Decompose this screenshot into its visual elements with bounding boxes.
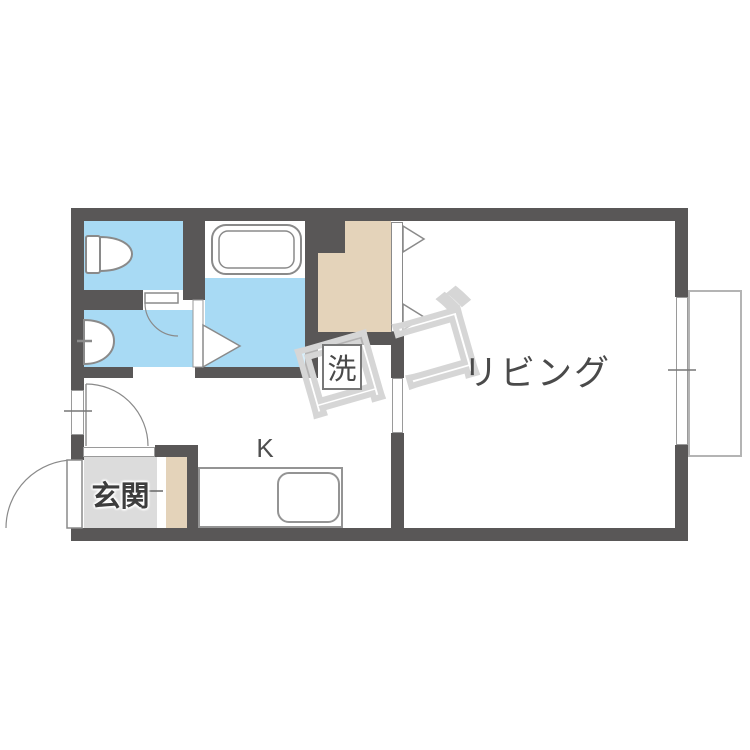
- kitchen-living-opening: [392, 378, 403, 433]
- living-room-label: リビング: [437, 345, 637, 396]
- washing-machine-label: 洗: [327, 346, 356, 388]
- wall-bath-south: [195, 367, 318, 378]
- wall-kitchen-living-lower: [391, 433, 404, 528]
- kitchen-label: K: [248, 433, 282, 464]
- bathtub-icon: [212, 225, 301, 274]
- kitchen-sink-icon: [277, 472, 340, 523]
- washing-machine-space: 洗: [322, 344, 362, 390]
- wall-right-upper: [675, 208, 688, 297]
- bathroom-floor: [205, 278, 305, 367]
- shoe-cabinet: [166, 457, 187, 528]
- balcony: [688, 290, 742, 457]
- wall-closet-notch: [305, 208, 345, 253]
- bath-door-strip: [193, 300, 203, 367]
- wall-entrance-stub: [155, 445, 198, 457]
- entrance-threshold: [83, 447, 155, 457]
- wall-toilet-bath: [183, 221, 205, 300]
- left-window: [71, 390, 84, 435]
- right-window: [676, 297, 688, 445]
- wall-entrance-east: [187, 445, 198, 528]
- closet-floor-upper: [345, 221, 391, 253]
- closet-door-strip: [391, 222, 403, 332]
- entrance-label: 玄関: [82, 473, 159, 515]
- wall-bottom: [71, 528, 688, 541]
- wall-washroom-south: [84, 367, 133, 378]
- closet-floor-lower: [318, 253, 391, 332]
- toilet-room-floor: [84, 221, 183, 290]
- hall-door-icon: [86, 384, 148, 446]
- wall-kitchen-living-upper: [391, 345, 404, 378]
- wall-toilet-divider: [71, 290, 143, 310]
- washroom-floor: [84, 310, 193, 367]
- floor-plan: ロゴ リビング 玄関 K 洗: [0, 0, 750, 750]
- closet-door-triangle-icon: [403, 304, 424, 330]
- kitchen-counter: [198, 467, 343, 528]
- closet-door-triangle-icon: [403, 226, 424, 252]
- wall-right-lower: [675, 445, 688, 541]
- wall-top: [71, 208, 688, 221]
